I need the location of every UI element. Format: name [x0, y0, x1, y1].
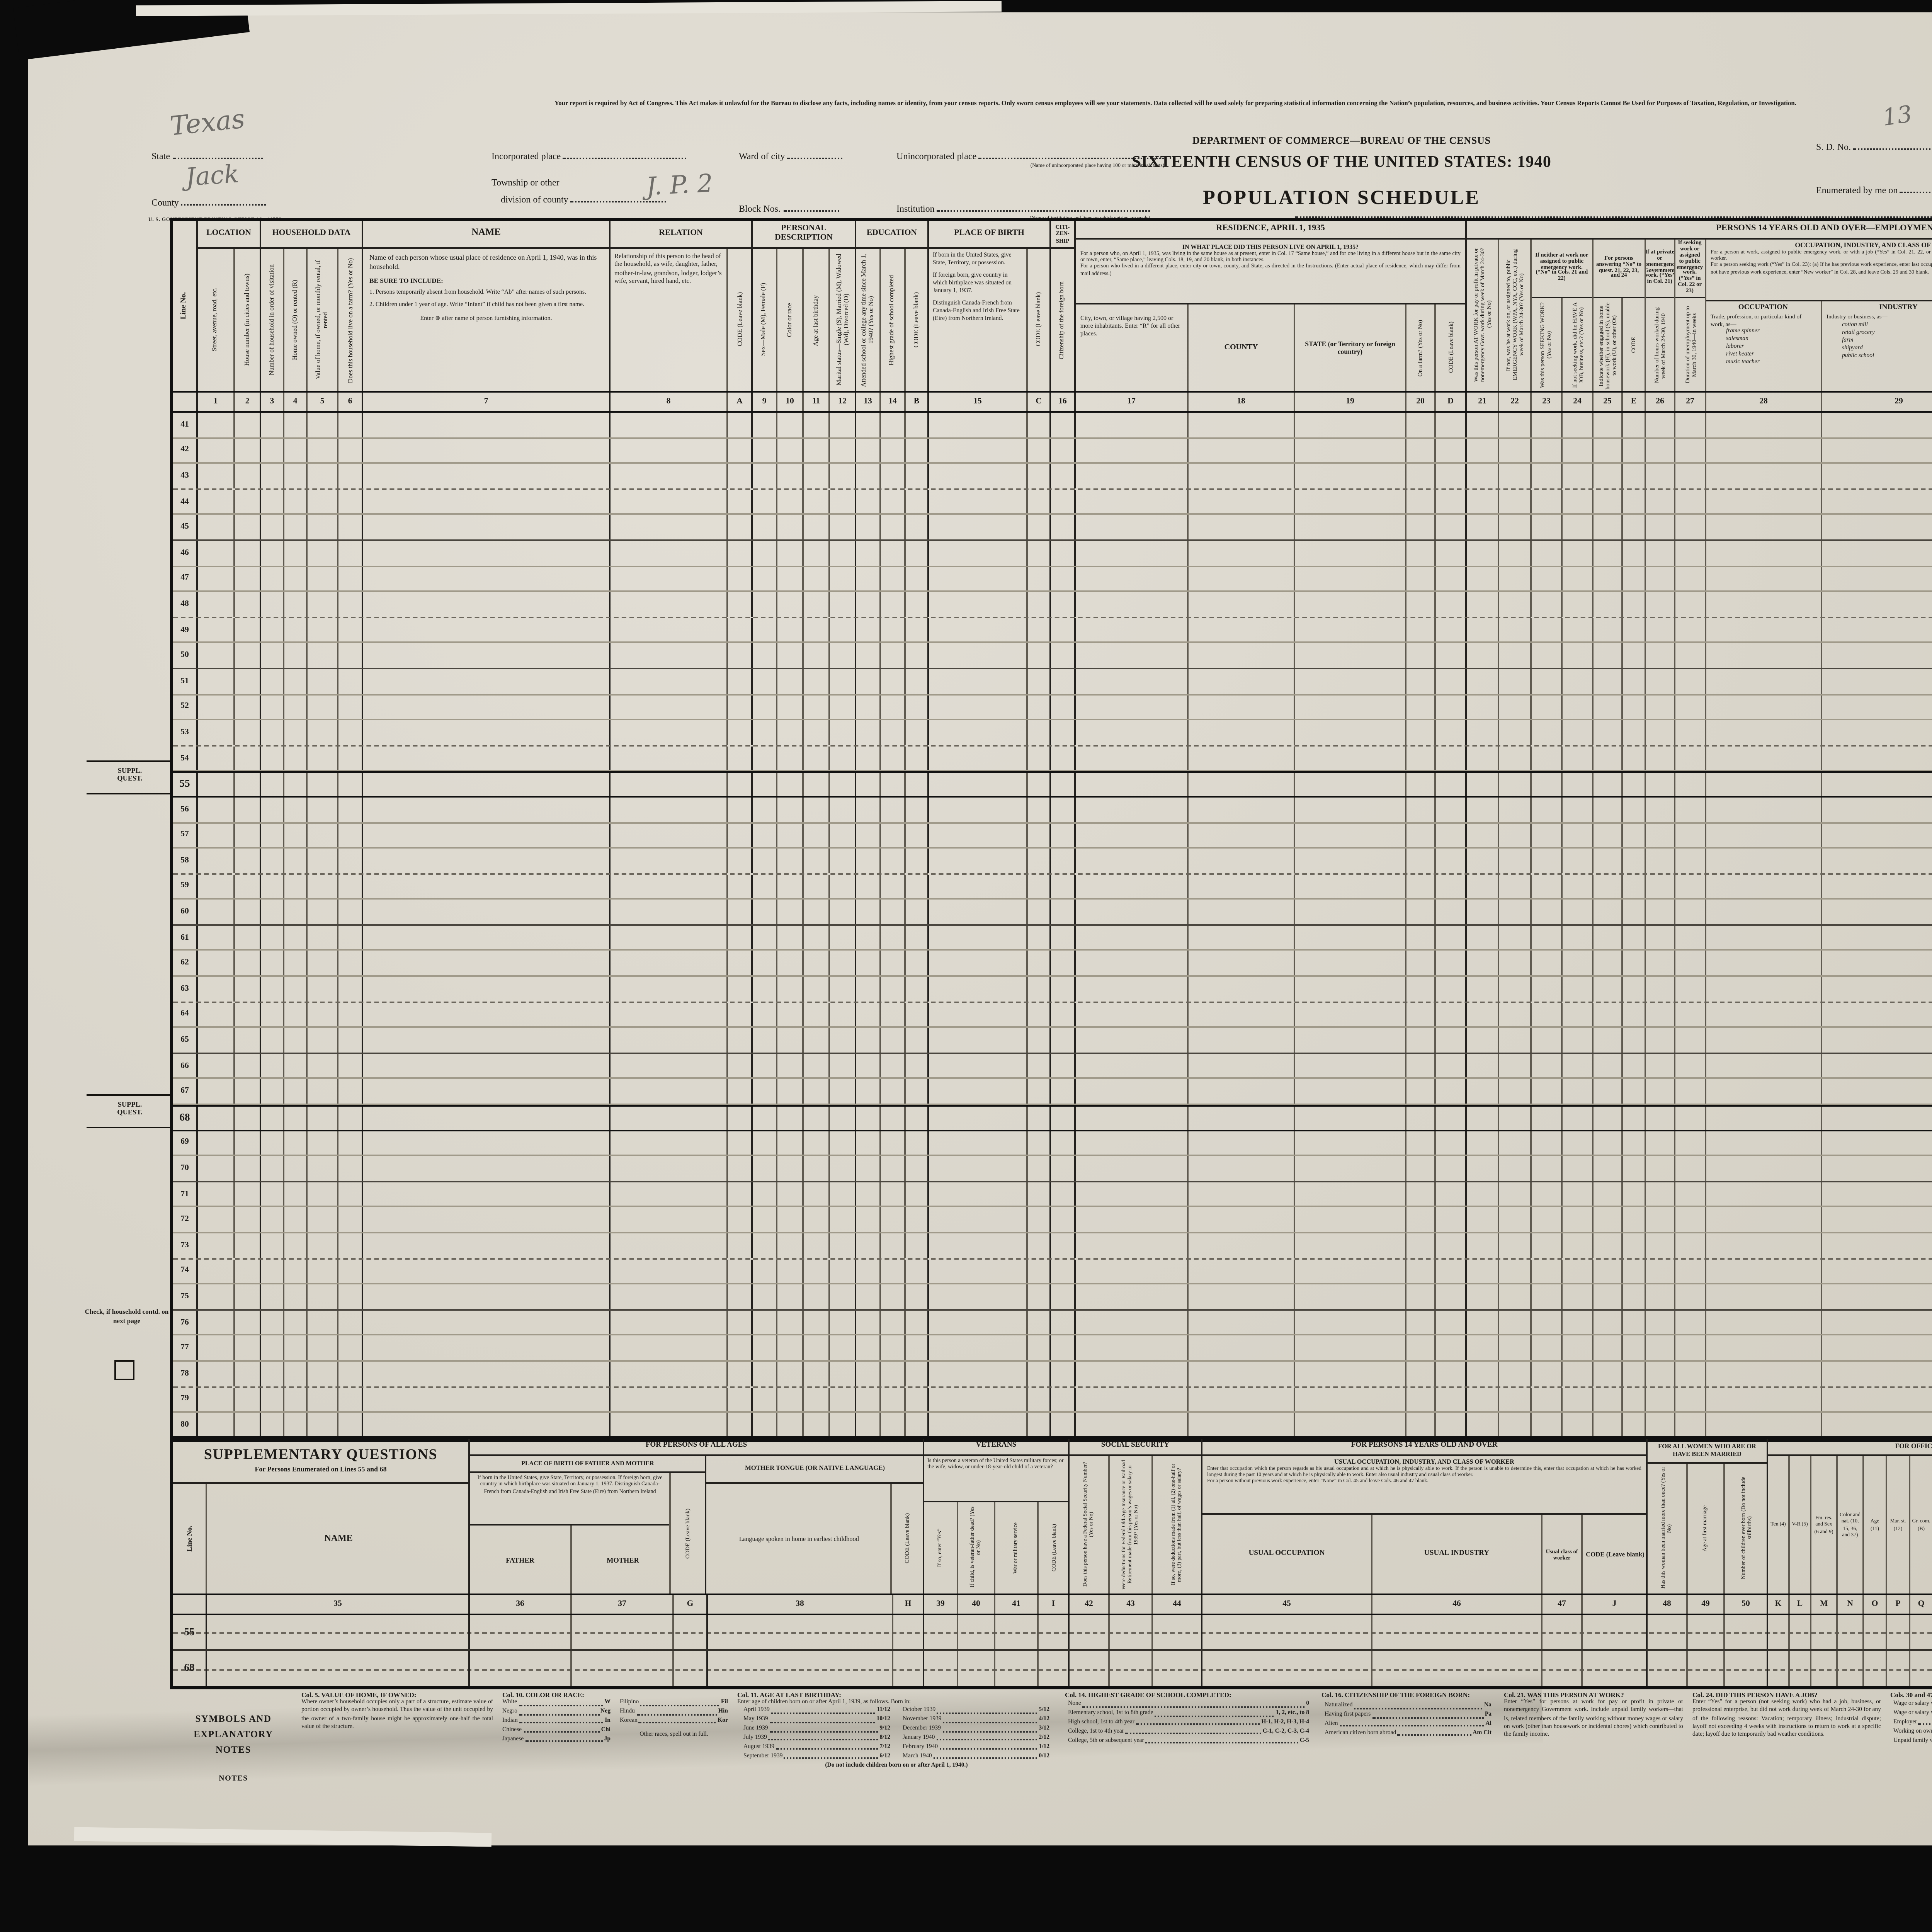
cell-r75 [1467, 1285, 1499, 1309]
cell-r41 [308, 413, 338, 437]
suppl-cell-r68 [1725, 1651, 1768, 1686]
cell-r66 [804, 1054, 830, 1078]
line-number-76: 76 [173, 1310, 198, 1334]
cell-r77 [1675, 1336, 1706, 1360]
cell-r46 [777, 541, 804, 565]
cell-r59 [1076, 874, 1189, 898]
cell-r43 [261, 464, 284, 488]
note-item: KoreanKor [620, 1717, 728, 1726]
group-name: NAMEName of each person whose usual plac… [363, 221, 611, 391]
cell-r60 [308, 900, 338, 924]
cell-r46 [1467, 541, 1499, 565]
cell-r65 [1076, 1028, 1189, 1052]
suppl-col-number-36: 36 [470, 1595, 572, 1614]
note-item: May 193910/12 [743, 1716, 890, 1725]
cell-r45 [830, 515, 856, 539]
cell-r45 [1563, 515, 1594, 539]
cell-r50 [235, 643, 261, 667]
cell-r60 [1563, 900, 1594, 924]
cell-r61 [1406, 926, 1436, 950]
cell-r52 [363, 695, 611, 719]
table-row-53: 5353 [173, 721, 1932, 746]
cell-r66 [906, 1054, 929, 1078]
cell-r73 [753, 1233, 777, 1257]
cell-r58 [881, 849, 906, 872]
cell-r58 [1028, 849, 1051, 872]
cell-r54 [1563, 746, 1594, 770]
cell-r63 [753, 977, 777, 1001]
cell-r80 [1532, 1413, 1563, 1437]
cell-r77 [1563, 1336, 1594, 1360]
cell-r67 [830, 1080, 856, 1104]
suppl-cell-r55 [1688, 1615, 1725, 1649]
cell-r54 [1189, 746, 1295, 770]
cell-r70 [1076, 1156, 1189, 1180]
cell-r62 [308, 951, 338, 975]
cell-r41 [1436, 413, 1467, 437]
cell-r45 [777, 515, 804, 539]
cell-r80 [1076, 1413, 1189, 1437]
cell-r60 [1295, 900, 1406, 924]
cell-r68 [235, 1107, 261, 1129]
cell-r67 [1406, 1080, 1436, 1104]
cell-r61 [753, 926, 777, 950]
cell-r72 [830, 1208, 856, 1232]
cell-r76 [1706, 1310, 1822, 1334]
cell-r53 [338, 721, 363, 745]
cell-r76 [611, 1310, 728, 1334]
cell-r79 [198, 1387, 235, 1411]
cell-r77 [1706, 1336, 1822, 1360]
cell-r45 [881, 515, 906, 539]
cell-r56 [1499, 798, 1532, 821]
col-number-12: 12 [830, 393, 856, 411]
cell-r54 [1532, 746, 1563, 770]
note-item: IndianIn [502, 1717, 611, 1726]
cell-r64 [261, 1003, 284, 1027]
cell-r77 [1076, 1336, 1189, 1360]
cell-r76 [1051, 1310, 1076, 1334]
notes-col24: Col. 24. DID THIS PERSON HAVE A JOB? Ent… [1688, 1691, 1886, 1786]
cell-r48 [308, 592, 338, 616]
cell-r60 [363, 900, 611, 924]
cell-r42 [1189, 438, 1295, 462]
sd-field: S. D. No. [1816, 139, 1932, 153]
cell-r58 [777, 849, 804, 872]
cell-r42 [1467, 438, 1499, 462]
cell-r67 [1532, 1080, 1563, 1104]
cell-r59 [1406, 874, 1436, 898]
cell-r70 [830, 1156, 856, 1180]
cell-r63 [1406, 977, 1436, 1001]
cell-r49 [363, 618, 611, 642]
cell-r53 [830, 721, 856, 745]
sd-handwritten: 13 [1881, 100, 1914, 132]
subgroup-neither-at-work: If neither at work nor assigned to publi… [1532, 240, 1594, 391]
cell-r79 [1189, 1387, 1295, 1411]
cell-r68 [308, 1107, 338, 1129]
cell-r73 [777, 1233, 804, 1257]
cell-r63 [1436, 977, 1467, 1001]
col-number-line [173, 393, 198, 411]
cell-r55 [1532, 773, 1563, 796]
cell-r52 [284, 695, 308, 719]
cell-r54 [284, 746, 308, 770]
cell-r43 [777, 464, 804, 488]
suppl-col-number-50: 50 [1725, 1595, 1768, 1614]
table-row-50: 5050 [173, 643, 1932, 669]
cell-r70 [1532, 1156, 1563, 1180]
cell-r69 [1076, 1131, 1189, 1155]
cell-r59 [1623, 874, 1646, 898]
line-number-59: 59 [173, 874, 198, 898]
cell-r76 [881, 1310, 906, 1334]
cell-r74 [777, 1259, 804, 1283]
cell-r47 [363, 566, 611, 590]
cell-r64 [906, 1003, 929, 1027]
cell-r64 [1706, 1003, 1822, 1027]
cell-r73 [363, 1233, 611, 1257]
cell-r51 [1076, 669, 1189, 693]
cell-r69 [1623, 1131, 1646, 1155]
cell-r67 [235, 1080, 261, 1104]
table-row-45: 4545 [173, 515, 1932, 541]
cell-r75 [856, 1285, 881, 1309]
cell-r44 [804, 490, 830, 514]
cell-r73 [1406, 1233, 1436, 1257]
cell-r67 [1467, 1080, 1499, 1104]
cell-r53 [198, 721, 235, 745]
cell-r64 [284, 1003, 308, 1027]
suppl-cell-r55 [1039, 1615, 1070, 1649]
suppl-cell-r55 [995, 1615, 1039, 1649]
col-number-16: 16 [1051, 393, 1076, 411]
cell-r71 [728, 1182, 753, 1206]
suppl-cell-r68 [1790, 1651, 1811, 1686]
cell-r45 [1467, 515, 1499, 539]
col-number-18: 18 [1189, 393, 1295, 411]
notes-word: NOTES [175, 1774, 292, 1786]
cell-r54 [611, 746, 728, 770]
cell-r44 [1563, 490, 1594, 514]
col-number-17: 17 [1076, 393, 1189, 411]
cell-r56 [753, 798, 777, 821]
cell-r52 [728, 695, 753, 719]
cell-r52 [1028, 695, 1051, 719]
col-header-line-no-left: Line No. [173, 221, 198, 391]
cell-r45 [1623, 515, 1646, 539]
cell-r45 [284, 515, 308, 539]
cell-r65 [1467, 1028, 1499, 1052]
cell-r66 [611, 1054, 728, 1078]
cell-r42 [611, 438, 728, 462]
cell-r72 [198, 1208, 235, 1232]
cell-r51 [1051, 669, 1076, 693]
cell-r50 [1467, 643, 1499, 667]
cell-r42 [856, 438, 881, 462]
cell-r55 [1436, 773, 1467, 796]
cell-r64 [929, 1003, 1028, 1027]
cell-r45 [1406, 515, 1436, 539]
suppl-group-14-and-over: FOR PERSONS 14 YEARS OLD AND OVERUSUAL O… [1202, 1439, 1648, 1594]
table-row-44: 4444 [173, 490, 1932, 515]
cell-r66 [1295, 1054, 1406, 1078]
cell-r54 [1076, 746, 1189, 770]
cell-r71 [881, 1182, 906, 1206]
cell-r57 [611, 823, 728, 847]
cell-r69 [830, 1131, 856, 1155]
cell-r42 [1706, 438, 1822, 462]
cell-r75 [1563, 1285, 1594, 1309]
cell-r43 [1051, 464, 1076, 488]
cell-r55 [308, 773, 338, 796]
cell-r54 [235, 746, 261, 770]
cell-r69 [1706, 1131, 1822, 1155]
cell-r49 [308, 618, 338, 642]
cell-r46 [1563, 541, 1594, 565]
suppl-cell-r68 [1372, 1651, 1543, 1686]
cell-r52 [1675, 695, 1706, 719]
cell-r62 [777, 951, 804, 975]
cell-r73 [728, 1233, 753, 1257]
col-number-15: 15 [929, 393, 1028, 411]
cell-r50 [1295, 643, 1406, 667]
cell-r58 [1467, 849, 1499, 872]
cell-r78 [284, 1362, 308, 1386]
subgroup-answering-no: For persons answering “No” to quest. 21,… [1594, 240, 1646, 391]
line-number-80: 80 [173, 1413, 198, 1437]
cell-r42 [363, 438, 611, 462]
cell-r57 [830, 823, 856, 847]
cell-r77 [1532, 1336, 1563, 1360]
cell-r59 [1675, 874, 1706, 898]
adjacent-sheet-edge-top [136, 1, 1002, 16]
suppl-cell-r55 [1768, 1615, 1790, 1649]
cell-r76 [777, 1310, 804, 1334]
cell-r57 [308, 823, 338, 847]
cell-r73 [1532, 1233, 1563, 1257]
cell-r60 [830, 900, 856, 924]
cell-r45 [753, 515, 777, 539]
cell-r72 [1295, 1208, 1406, 1232]
cell-r55 [1675, 773, 1706, 796]
table-row-61: 6161 [173, 926, 1932, 951]
cell-r43 [804, 464, 830, 488]
suppl-cell-r68 [1811, 1651, 1838, 1686]
note-item: NegroNeg [502, 1708, 611, 1717]
cell-r68 [1623, 1107, 1646, 1129]
cell-r67 [308, 1080, 338, 1104]
cell-r48 [1822, 592, 1932, 616]
cell-r46 [830, 541, 856, 565]
cell-r49 [1623, 618, 1646, 642]
cell-r67 [1051, 1080, 1076, 1104]
suppl-cell-r55 [1811, 1615, 1838, 1649]
cell-r76 [906, 1310, 929, 1334]
cell-r65 [830, 1028, 856, 1052]
cell-r75 [308, 1285, 338, 1309]
note-item: June 19399/12 [743, 1725, 890, 1734]
cell-r63 [1563, 977, 1594, 1001]
cell-r74 [906, 1259, 929, 1283]
cell-r67 [728, 1080, 753, 1104]
group-household-data-col: Value of home, if owned, or monthly rent… [308, 249, 338, 391]
suppl-quest-left-55: SUPPL.QUEST. [87, 767, 173, 783]
cell-r65 [308, 1028, 338, 1052]
cell-r58 [1563, 849, 1594, 872]
cell-r47 [1028, 566, 1051, 590]
cell-r68 [1532, 1107, 1563, 1129]
table-row-73: 7373 [173, 1233, 1932, 1259]
cell-r62 [929, 951, 1028, 975]
cell-r67 [753, 1080, 777, 1104]
cell-r67 [804, 1080, 830, 1104]
cell-r59 [1436, 874, 1467, 898]
cell-r69 [753, 1131, 777, 1155]
cell-r77 [284, 1336, 308, 1360]
line-number-69: 69 [173, 1131, 198, 1155]
suppl-group-pob-parents: PLACE OF BIRTH OF FATHER AND MOTHERIf bo… [470, 1456, 707, 1594]
suppl-row-68: 6868 [173, 1651, 1932, 1686]
cell-r63 [1822, 977, 1932, 1001]
cell-r51 [1646, 669, 1675, 693]
cell-r42 [308, 438, 338, 462]
cell-r57 [1499, 823, 1532, 847]
cell-r70 [804, 1156, 830, 1180]
col-number-20: 20 [1406, 393, 1436, 411]
cell-r42 [1499, 438, 1532, 462]
cell-r53 [1594, 721, 1623, 745]
cell-r68 [1076, 1107, 1189, 1129]
cell-r49 [1706, 618, 1822, 642]
cell-r52 [1563, 695, 1594, 719]
group-personal-description-col: Color or race [777, 249, 804, 391]
cell-r51 [235, 669, 261, 693]
table-row-80: 8080 [173, 1413, 1932, 1439]
cell-r52 [308, 695, 338, 719]
cell-r75 [235, 1285, 261, 1309]
cell-r73 [261, 1233, 284, 1257]
cell-r43 [1406, 464, 1436, 488]
cell-r59 [881, 874, 906, 898]
cell-r45 [1295, 515, 1406, 539]
cell-r61 [284, 926, 308, 950]
cell-r65 [1623, 1028, 1646, 1052]
table-row-64: 6464 [173, 1003, 1932, 1028]
cell-r59 [777, 874, 804, 898]
cell-r56 [881, 798, 906, 821]
cell-r47 [753, 566, 777, 590]
cell-r74 [929, 1259, 1028, 1283]
cell-r59 [804, 874, 830, 898]
cell-r64 [235, 1003, 261, 1027]
cell-r49 [1499, 618, 1532, 642]
note-item: JapaneseJp [502, 1735, 611, 1744]
cell-r62 [1295, 951, 1406, 975]
cell-r68 [1563, 1107, 1594, 1129]
cell-r41 [1623, 413, 1646, 437]
cell-r77 [1295, 1336, 1406, 1360]
cell-r77 [235, 1336, 261, 1360]
cell-r73 [1623, 1233, 1646, 1257]
cell-r69 [308, 1131, 338, 1155]
cell-r65 [261, 1028, 284, 1052]
suppl-quest-left-68: SUPPL.QUEST. [87, 1100, 173, 1117]
cell-r51 [929, 669, 1028, 693]
cell-r73 [1076, 1233, 1189, 1257]
cell-r48 [1189, 592, 1295, 616]
cell-r44 [1623, 490, 1646, 514]
table-row-58: 5858 [173, 849, 1932, 874]
cell-r50 [363, 643, 611, 667]
cell-r61 [308, 926, 338, 950]
cell-r51 [363, 669, 611, 693]
cell-r46 [1436, 541, 1467, 565]
cell-r67 [906, 1080, 929, 1104]
line-number-53: 53 [173, 721, 198, 745]
cell-r58 [1436, 849, 1467, 872]
cell-r50 [1076, 643, 1189, 667]
cell-r62 [611, 951, 728, 975]
cell-r73 [1189, 1233, 1295, 1257]
cell-r56 [929, 798, 1028, 821]
cell-r50 [1646, 643, 1675, 667]
cell-r41 [338, 413, 363, 437]
suppl-cell-r55 [1790, 1615, 1811, 1649]
line-number-47: 47 [173, 566, 198, 590]
cell-r44 [881, 490, 906, 514]
cell-r56 [1675, 798, 1706, 821]
table-row-41: 4141 [173, 413, 1932, 438]
cell-r61 [1563, 926, 1594, 950]
line-number-71: 71 [173, 1182, 198, 1206]
cell-r53 [777, 721, 804, 745]
cell-r73 [1028, 1233, 1051, 1257]
cell-r63 [1675, 977, 1706, 1001]
cell-r62 [906, 951, 929, 975]
cell-r53 [284, 721, 308, 745]
cell-r78 [1051, 1362, 1076, 1386]
cell-r74 [1051, 1259, 1076, 1283]
cell-r50 [284, 643, 308, 667]
cell-r53 [1189, 721, 1295, 745]
cell-r72 [1028, 1208, 1051, 1232]
cell-r41 [1467, 413, 1499, 437]
cell-r49 [804, 618, 830, 642]
line-number-61: 61 [173, 926, 198, 950]
cell-r60 [1499, 900, 1532, 924]
cell-r76 [198, 1310, 235, 1334]
cell-r74 [363, 1259, 611, 1283]
supplementary-header: SUPPLEMENTARY QUESTIONSFor Persons Enume… [173, 1439, 1932, 1594]
col-26-hours: If at private or nonemergency Government… [1646, 240, 1675, 391]
cell-r53 [804, 721, 830, 745]
suppl-cell-r68 [1887, 1651, 1910, 1686]
unincorporated-label: Unincorporated place [896, 153, 976, 162]
col-number-A: A [728, 393, 753, 411]
cell-r62 [1436, 951, 1467, 975]
cell-r53 [728, 721, 753, 745]
cell-r41 [830, 413, 856, 437]
note-item: July 19398/12 [743, 1734, 890, 1743]
cell-r59 [1295, 874, 1406, 898]
cell-r64 [1295, 1003, 1406, 1027]
col-number-26: 26 [1646, 393, 1675, 411]
col21-heading: Col. 21. WAS THIS PERSON AT WORK? [1504, 1691, 1683, 1699]
cell-r75 [804, 1285, 830, 1309]
cell-r55 [1594, 773, 1623, 796]
cell-r43 [753, 464, 777, 488]
